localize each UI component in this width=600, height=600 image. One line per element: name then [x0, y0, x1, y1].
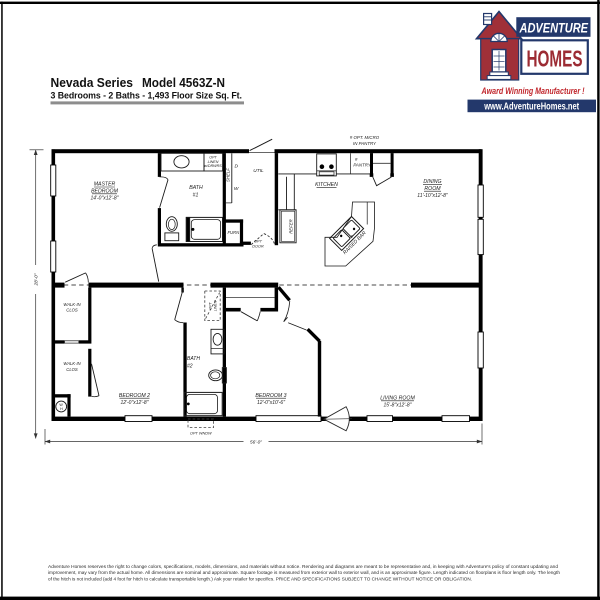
- svg-text:W: W: [234, 186, 239, 192]
- svg-text:OPT: OPT: [254, 240, 262, 244]
- svg-text:CLOS: CLOS: [66, 308, 78, 313]
- svg-text:BATH: BATH: [189, 185, 203, 191]
- svg-text:FURN: FURN: [227, 230, 240, 235]
- svg-text:BEDROOM 3: BEDROOM 3: [255, 393, 286, 399]
- svg-text:BEDROOM 2: BEDROOM 2: [119, 393, 150, 399]
- svg-text:w/DRWRS: w/DRWRS: [204, 164, 222, 168]
- svg-text:# OPT. MICRO: # OPT. MICRO: [350, 135, 380, 140]
- svg-text:14'-0"x12'-8": 14'-0"x12'-8": [91, 196, 119, 202]
- svg-text:OPT: OPT: [209, 302, 213, 310]
- svg-text:of the hitch is not included (: of the hitch is not included (add 4 foot…: [48, 576, 472, 581]
- svg-text:improvement, may vary from the: improvement, may vary from the actual ho…: [48, 570, 560, 575]
- svg-text:IN PANTRY: IN PANTRY: [353, 141, 377, 146]
- svg-text:LINEN: LINEN: [208, 160, 219, 164]
- svg-text:PANTRY: PANTRY: [353, 163, 371, 168]
- svg-text:WALK-IN: WALK-IN: [63, 361, 81, 366]
- svg-text:12'-0"x12'-8": 12'-0"x12'-8": [121, 400, 149, 406]
- svg-text:HOMES: HOMES: [527, 45, 583, 71]
- svg-text:UTIL: UTIL: [253, 168, 264, 174]
- svg-text:www.AdventureHomes.net: www.AdventureHomes.net: [483, 102, 579, 113]
- svg-text:WALK-IN: WALK-IN: [63, 302, 81, 307]
- svg-text:28'-0": 28'-0": [33, 273, 38, 286]
- svg-text:Adventure Homes reserves the r: Adventure Homes reserves the right to ch…: [48, 564, 558, 569]
- svg-text:DOOR: DOOR: [252, 244, 264, 248]
- svg-text:REFER: REFER: [288, 219, 293, 234]
- svg-text:CLOS: CLOS: [66, 367, 78, 372]
- svg-text:3 Bedrooms - 2 Baths - 1,493 F: 3 Bedrooms - 2 Baths - 1,493 Floor Size …: [51, 91, 243, 101]
- svg-text:Award Winning Manufacturer !: Award Winning Manufacturer !: [481, 86, 585, 97]
- svg-text:D: D: [235, 163, 239, 169]
- svg-text:H: H: [60, 407, 63, 411]
- svg-text:SHELF: SHELF: [226, 168, 231, 182]
- svg-text:OPT WNDW: OPT WNDW: [190, 431, 212, 435]
- svg-text:#2: #2: [187, 363, 193, 369]
- svg-text:56'-0": 56'-0": [250, 439, 262, 444]
- svg-text:12'-0"x10'-6": 12'-0"x10'-6": [257, 400, 285, 406]
- svg-text:Nevada Series: Nevada Series: [51, 76, 134, 90]
- svg-text:OPT: OPT: [209, 155, 217, 159]
- svg-text:ADVENTURE: ADVENTURE: [519, 21, 589, 36]
- svg-text:11'-10"x12'-8": 11'-10"x12'-8": [417, 193, 448, 199]
- svg-text:BATH: BATH: [187, 356, 200, 362]
- svg-text:#1: #1: [193, 193, 199, 199]
- svg-text:Model 4563Z-N: Model 4563Z-N: [142, 76, 225, 90]
- svg-text:15'-8"x12'-8": 15'-8"x12'-8": [384, 403, 412, 409]
- svg-text:LINEN: LINEN: [213, 300, 217, 311]
